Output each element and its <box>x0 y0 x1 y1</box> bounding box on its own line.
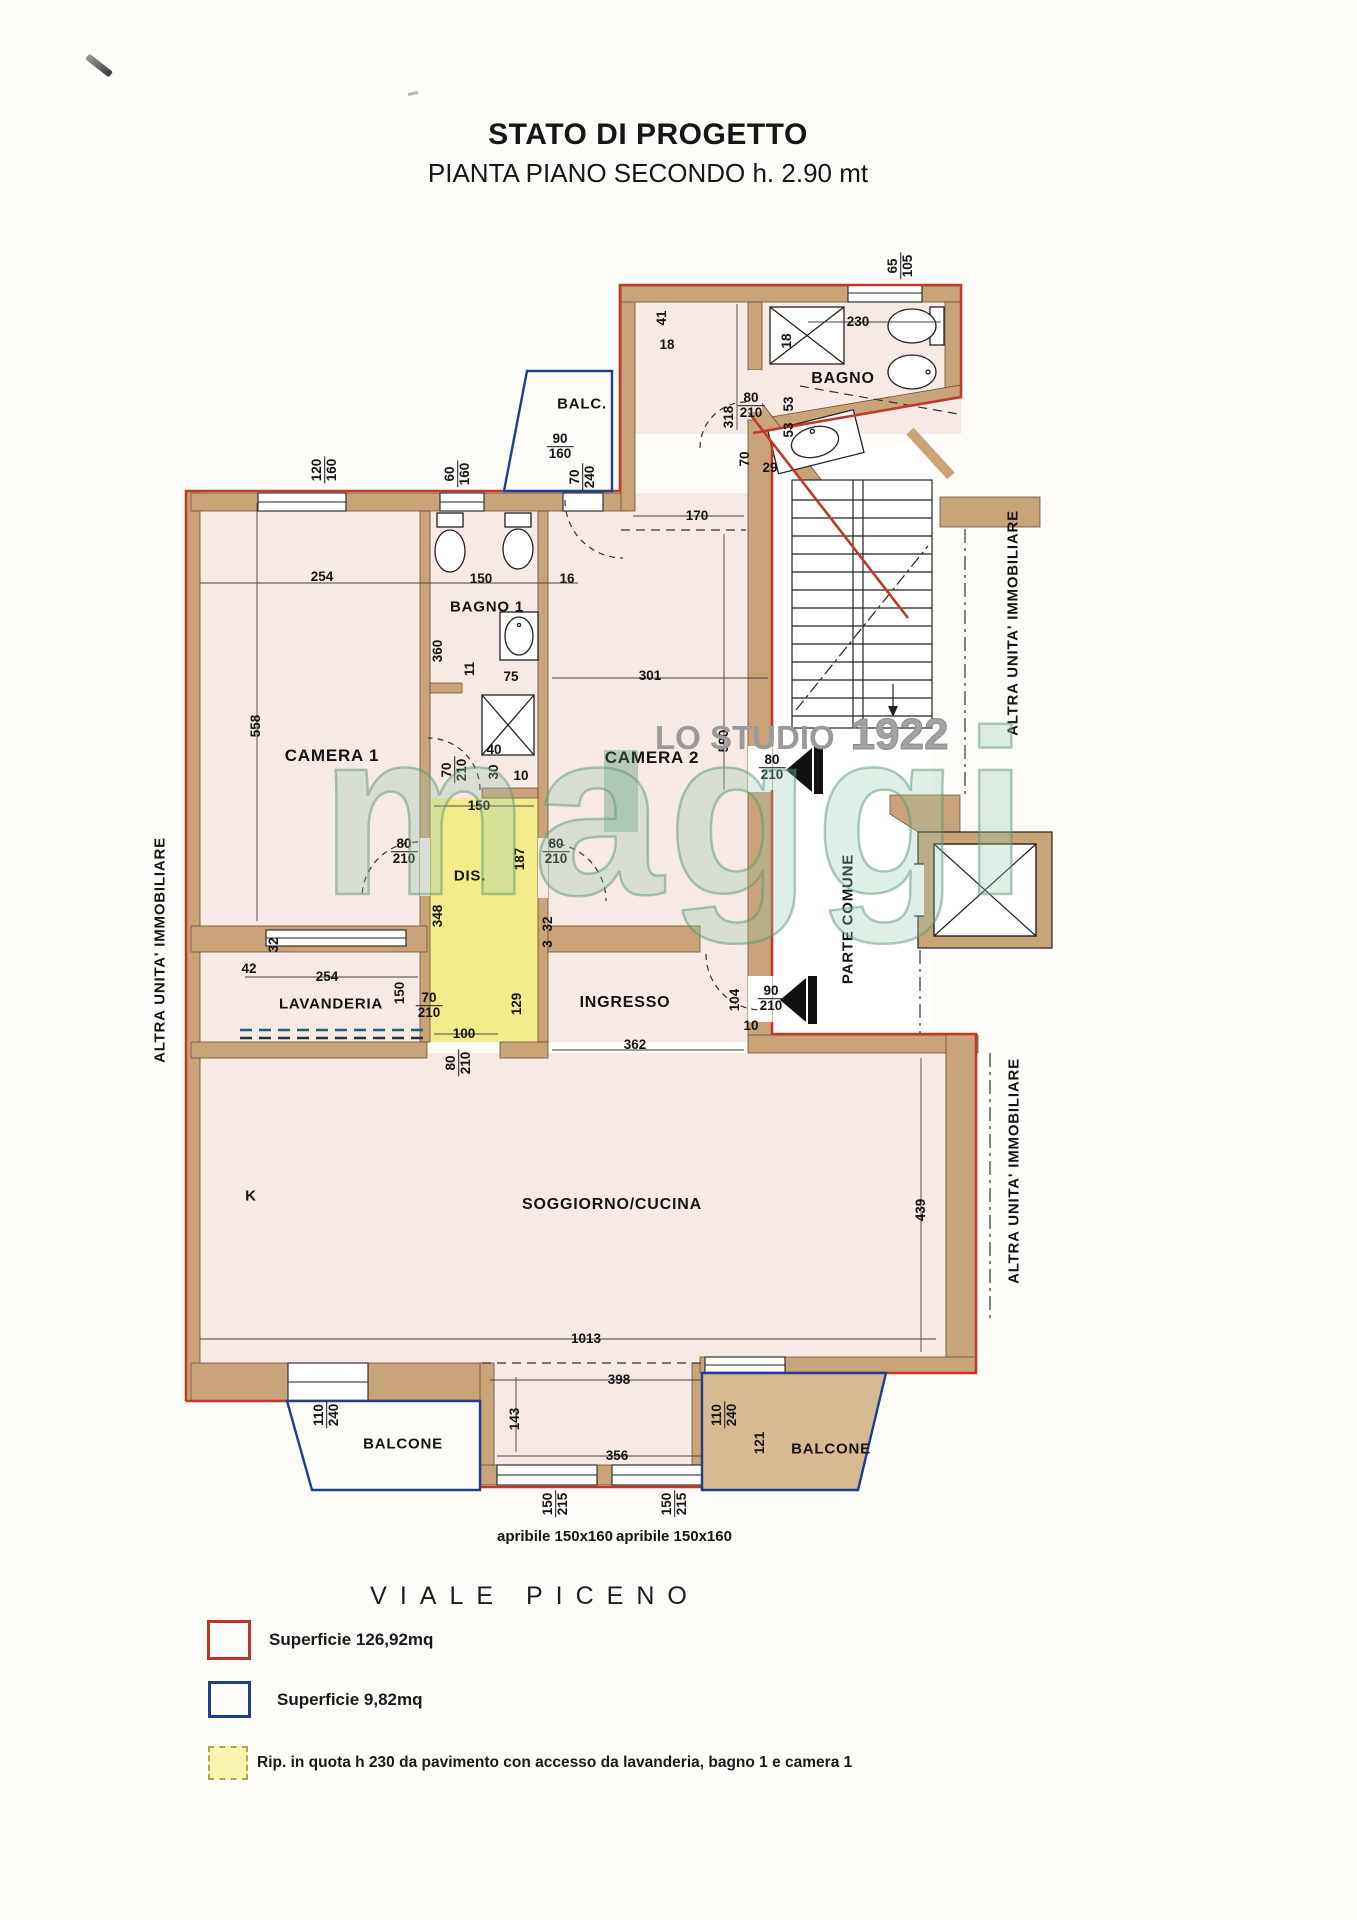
balcone-right-outline <box>702 1373 886 1490</box>
sink-bagno1-icon <box>500 612 538 660</box>
legend-row-superficie-blue: Superficie 9,82mq <box>208 1681 423 1718</box>
shower-top-icon <box>770 307 844 364</box>
balcone-left-outline <box>287 1401 480 1490</box>
legend-label: Superficie 126,92mq <box>269 1630 433 1650</box>
toilet-top-icon <box>888 307 944 345</box>
floor-plan-drawing <box>0 0 1357 1920</box>
bidet-top-icon <box>888 355 936 389</box>
elevator <box>914 832 1052 948</box>
legend-label: Rip. in quota h 230 da pavimento con acc… <box>257 1754 852 1772</box>
balc-top-outline <box>504 371 612 491</box>
yellow-dashed-swatch <box>208 1746 248 1780</box>
street-label: VIALE PICENO <box>300 1582 770 1611</box>
blue-outline-swatch <box>208 1681 251 1718</box>
legend-label: Superficie 9,82mq <box>277 1690 423 1710</box>
legend-row-superficie-red: Superficie 126,92mq <box>207 1620 433 1660</box>
staircase <box>792 480 932 728</box>
shower-bagno1-icon <box>482 695 534 755</box>
red-outline-swatch <box>207 1620 251 1660</box>
legend-row-ripostiglio: Rip. in quota h 230 da pavimento con acc… <box>208 1746 852 1780</box>
ripostiglio-area <box>430 798 538 1042</box>
scanned-floor-plan-page: STATO DI PROGETTO PIANTA PIANO SECONDO h… <box>0 0 1357 1920</box>
bidet-bagno1-icon <box>503 513 533 569</box>
toilet-bagno1-icon <box>435 513 465 572</box>
